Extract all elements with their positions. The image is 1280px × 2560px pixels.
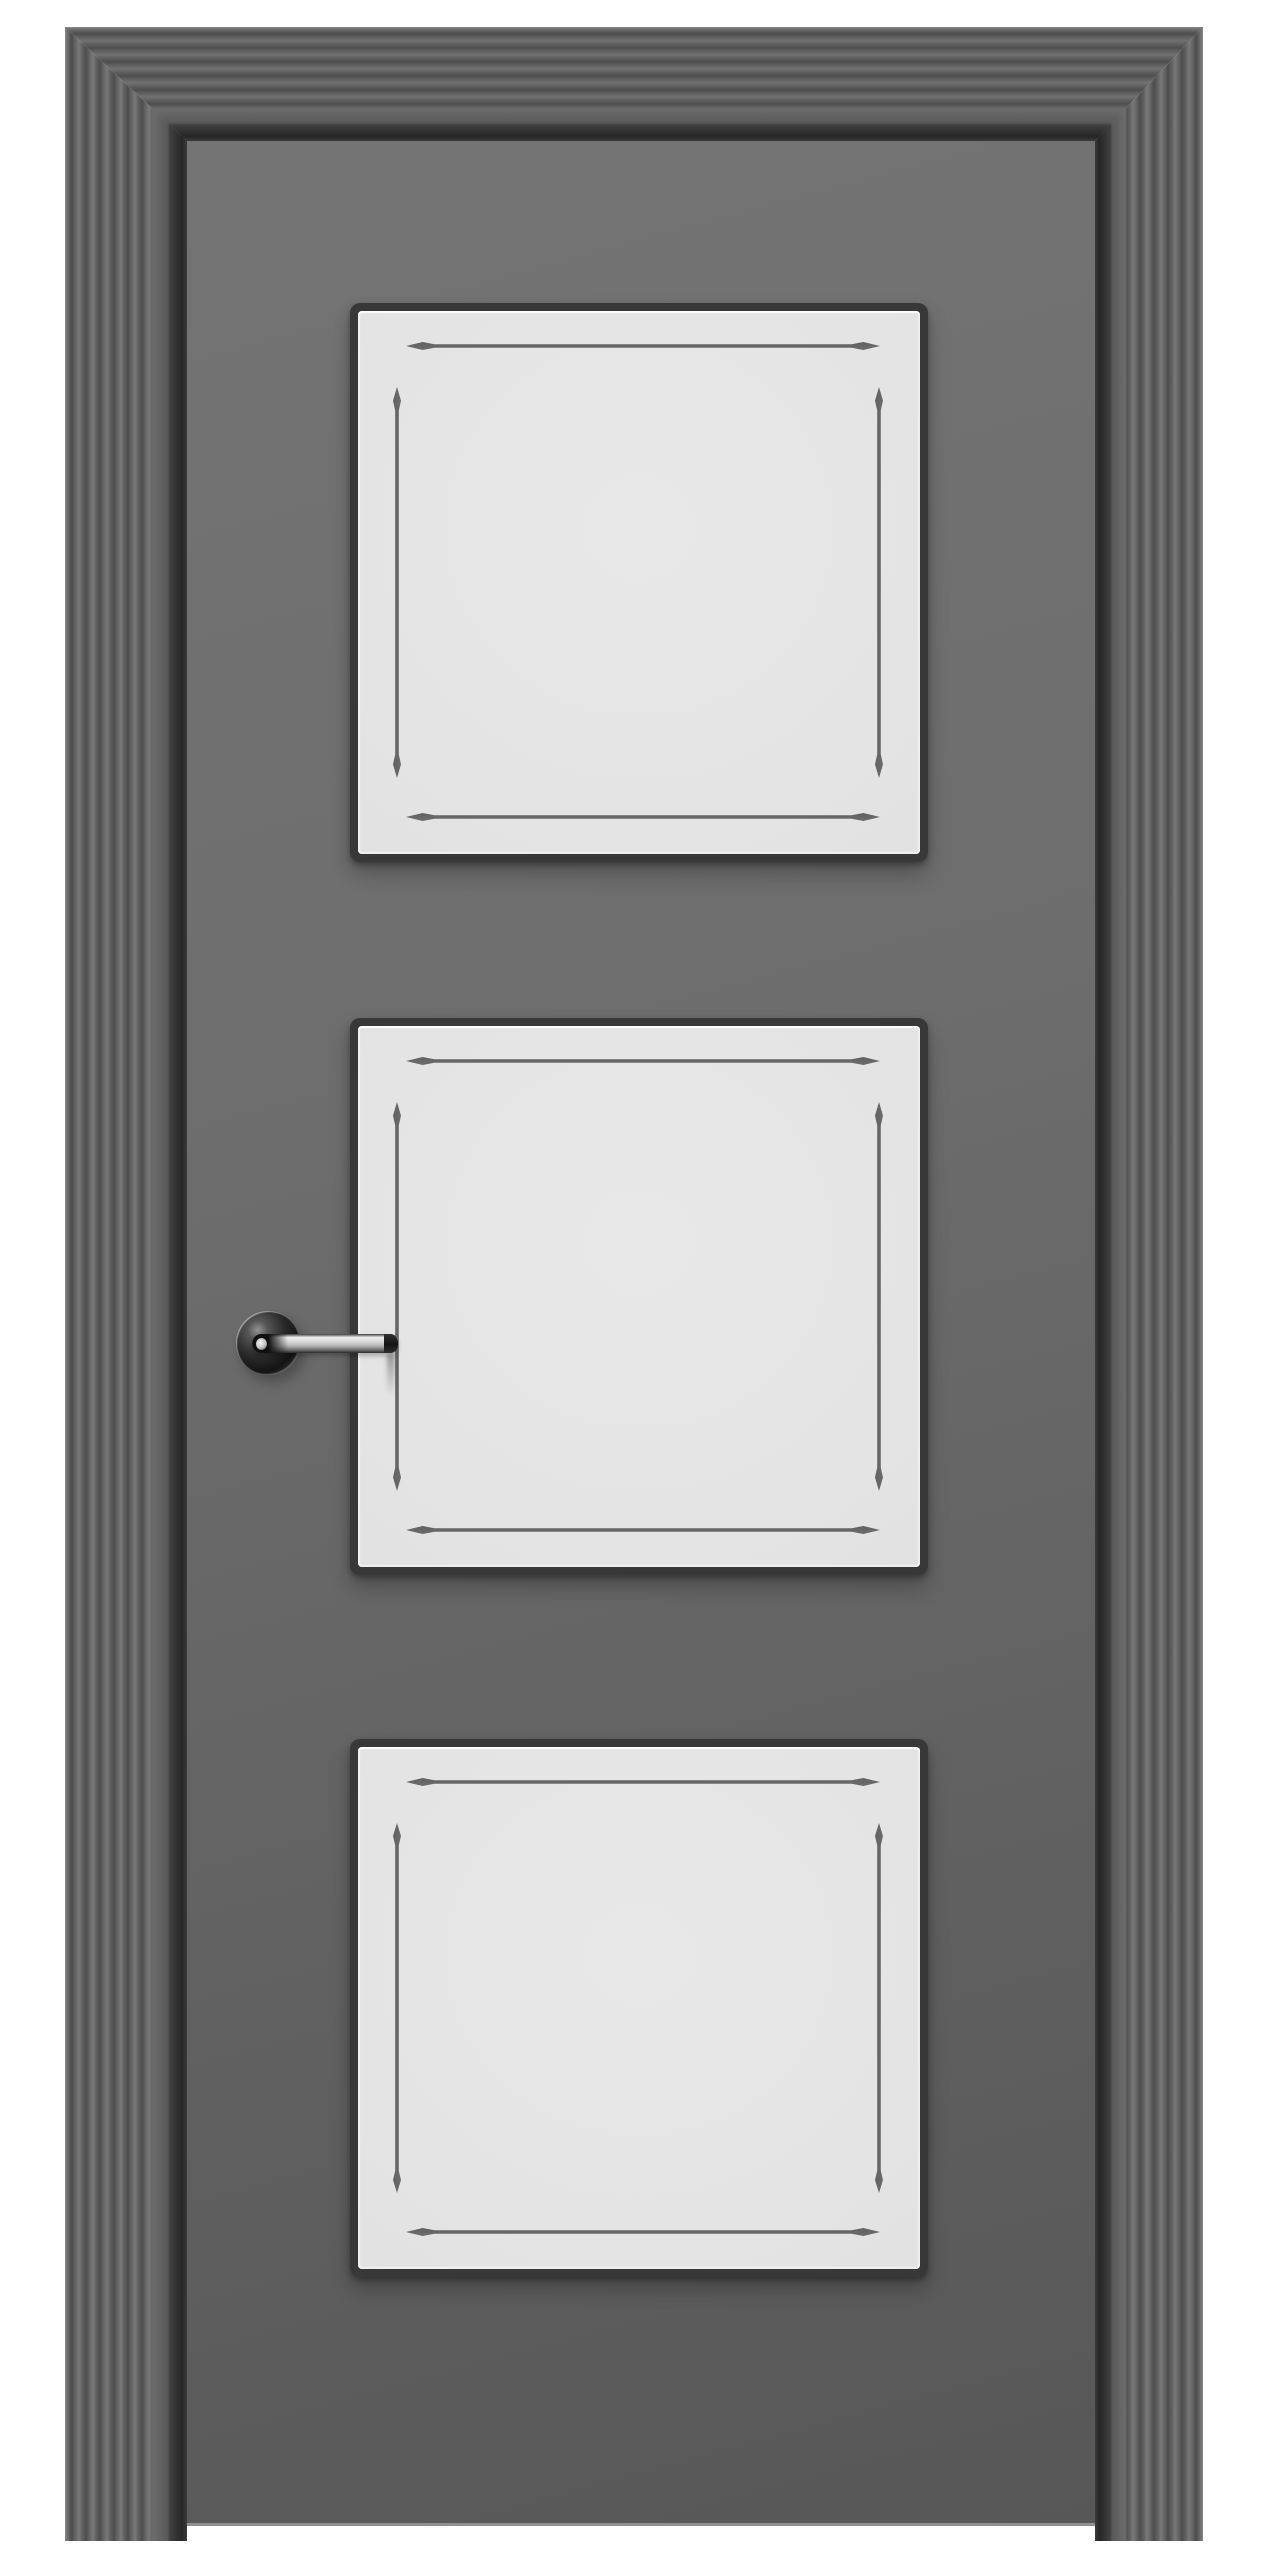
glass-panel-middle [350,1018,928,1575]
glass-panel-bottom [350,1739,928,2277]
lever-shadow [387,1354,395,1396]
frame-left-molding [65,27,187,2541]
panel-groove-top [406,1776,880,1788]
glass-pane [358,1747,920,2269]
glass-pane [358,311,920,854]
door-product-photo [0,0,1280,2560]
panel-groove-left [391,387,403,778]
panel-groove-left [391,1823,403,2193]
panel-groove-bottom [406,2226,880,2238]
panel-groove-top [406,1055,880,1067]
chrome-highlight [256,1338,267,1350]
panel-groove-bottom [406,1524,880,1536]
glass-pane [358,1026,920,1567]
panel-groove-bottom [406,811,880,823]
frame-right-molding [1095,27,1203,2541]
frame-top-molding [65,27,1203,141]
panel-groove-right [873,1102,885,1491]
panel-groove-right [873,1823,885,2193]
glass-panel-top [350,303,928,862]
panel-groove-top [406,340,880,352]
panel-groove-right [873,387,885,778]
handle-lever-tip [384,1334,398,1353]
panel-groove-left [391,1102,403,1491]
